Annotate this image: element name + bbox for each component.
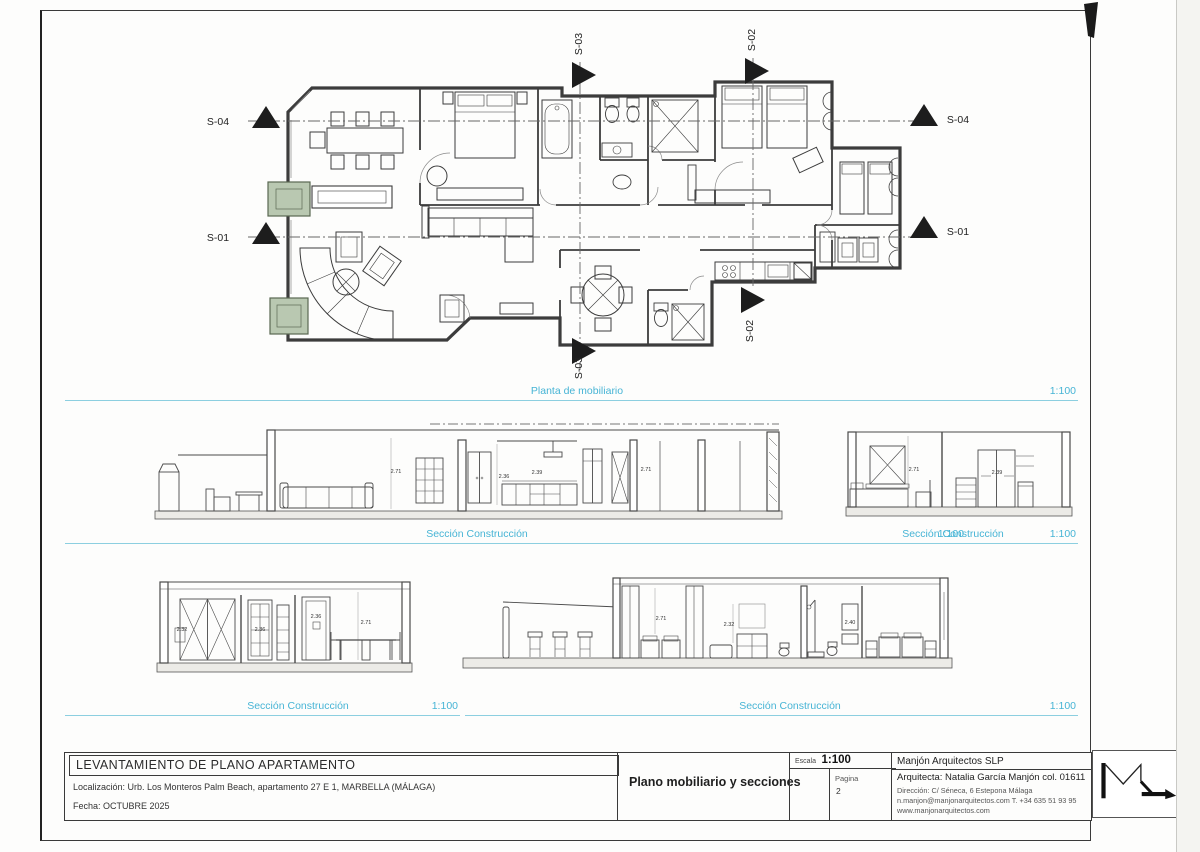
- section-b-window: [866, 446, 909, 488]
- page-number: 2: [836, 786, 841, 796]
- armchair-1: [336, 232, 362, 262]
- media-console: [312, 186, 392, 208]
- scale-value: 1:100: [822, 754, 851, 766]
- section-a-title: Sección Construcción: [357, 527, 597, 542]
- dim-d-240: 2.40: [845, 620, 856, 626]
- master-bed: [427, 92, 527, 200]
- dim-c-232: 2.32: [177, 627, 188, 633]
- section-b-bed: [850, 483, 908, 507]
- section-d-title: Sección Construcción: [670, 699, 910, 714]
- architect-name: Arquitecta: Natalia García Manjón col. 0…: [897, 772, 1085, 783]
- section-d-wardrobes: [622, 586, 703, 658]
- plan-title-row: Planta de mobiliario 1:100: [65, 383, 1078, 401]
- plan-scale: 1:100: [1050, 384, 1076, 399]
- section-a-right-wall: [767, 432, 779, 511]
- section-c-title: Sección Construcción: [178, 699, 418, 714]
- firm-contact: n.manjon@manjonarquitectos.com T. +34 63…: [897, 796, 1076, 805]
- section-c-scale: 1:100: [432, 699, 458, 714]
- utility-room: [820, 232, 878, 262]
- section-a-double-door: [468, 452, 491, 503]
- section-b-drawing: 2.71 2.39: [846, 432, 1072, 516]
- title-block: LEVANTAMIENTO DE PLANO APARTAMENTO Local…: [64, 752, 1092, 821]
- section-d-drawing: 2.71 2.32 2.40: [463, 578, 952, 668]
- divider: [891, 769, 1091, 770]
- location-value: Urb. Los Monteros Palm Beach, apartament…: [128, 782, 436, 792]
- marker-s03-bottom: S-03: [573, 357, 585, 379]
- marker-s01-left: S-01: [207, 232, 229, 244]
- guest-bath: [654, 303, 704, 340]
- firm-name: Manjón Arquitectos SLP: [897, 756, 1004, 767]
- dim-a-271: 2.71: [391, 469, 402, 475]
- armchair-2: [363, 246, 402, 285]
- drawing-title: Plano mobiliario y secciones: [629, 775, 801, 789]
- divider: [617, 753, 618, 820]
- section-d-terrace: [503, 602, 618, 658]
- wing-bedroom: [840, 158, 898, 268]
- section-a-drawing: 2.71 2.36 2.39: [155, 424, 782, 519]
- section-c-drawing: 2.32 2.36 2.36 2.71: [157, 582, 412, 672]
- date-label: Fecha:: [73, 801, 101, 811]
- firm-logo-box: [1092, 750, 1178, 818]
- kitchen-counter: [715, 262, 812, 280]
- section-d-twin-beds: [641, 636, 680, 658]
- section-d-shower: [807, 600, 858, 657]
- page-label: Pagina: [835, 774, 858, 783]
- section-b-door: [978, 450, 1015, 507]
- section-a-xdoor: [612, 452, 628, 503]
- section-a-glazed-grid: [416, 458, 443, 503]
- dim-d-232: 2.32: [724, 622, 735, 628]
- marker-s04-right: S-04: [947, 114, 969, 126]
- firm-logo-icon: [1093, 751, 1177, 817]
- section-b-title-row: Sección Construcción 1:100: [878, 526, 1078, 544]
- date-line: Fecha: OCTUBRE 2025: [73, 801, 170, 811]
- drawing-sheet: S-04 S-01 S-04 S-01 S-03 S-02 S-03 S-02: [0, 0, 1200, 852]
- scan-corner-artifact: [1084, 2, 1098, 38]
- marker-s03-top: S-03: [573, 33, 585, 55]
- location-label: Localización:: [73, 782, 125, 792]
- wc-bidet: [602, 98, 639, 157]
- dim-a-236: 2.36: [499, 474, 510, 480]
- section-b-chair: [916, 480, 931, 507]
- shower-top: [613, 100, 698, 200]
- scale-label: Escala: [795, 758, 816, 765]
- hall-console: [695, 190, 770, 203]
- door-arcs: [420, 146, 832, 318]
- section-a-sofa: [280, 483, 373, 508]
- dim-a-239: 2.39: [532, 470, 543, 476]
- marker-s01-right: S-01: [947, 226, 969, 238]
- dim-c-236b: 2.36: [311, 614, 322, 620]
- dim-c-236a: 2.36: [255, 627, 266, 633]
- dim-b-271: 2.71: [909, 467, 920, 473]
- divider: [891, 753, 892, 820]
- twin-bedroom: [722, 86, 832, 173]
- location-line: Localización: Urb. Los Monteros Palm Bea…: [73, 782, 435, 792]
- column-left-bottom: [270, 298, 308, 334]
- scale-box: Escala 1:100: [789, 753, 896, 769]
- living-sofa: [422, 206, 533, 262]
- dim-a-271b: 2.71: [641, 467, 652, 473]
- dim-d-271: 2.71: [656, 616, 667, 622]
- section-d-scale: 1:100: [1050, 699, 1076, 714]
- section-b-sink: [1016, 456, 1034, 507]
- section-c-title-row: Sección Construcción 1:100: [65, 698, 460, 716]
- firm-website: www.manjonarquitectos.com: [897, 806, 990, 815]
- plan-title: Planta de mobiliario: [457, 384, 697, 399]
- section-a-cabinet: [583, 449, 602, 503]
- section-b-shelf: [956, 478, 976, 507]
- section-d-bath: [710, 604, 789, 658]
- section-a-terrace: [159, 455, 268, 511]
- section-b-title: Sección Construcción: [878, 527, 1028, 542]
- marker-s02-top: S-02: [746, 29, 758, 51]
- section-c-door-opening: [302, 597, 330, 660]
- firm-address: Dirección: C/ Séneca, 6 Estepona Málaga: [897, 786, 1032, 795]
- project-title: LEVANTAMIENTO DE PLANO APARTAMENTO: [69, 755, 619, 776]
- divider: [789, 768, 790, 820]
- section-d-title-row: Sección Construcción 1:100: [465, 698, 1078, 716]
- date-value: OCTUBRE 2025: [103, 801, 170, 811]
- section-a-title-row: Sección Construcción 1:100: [65, 526, 966, 544]
- section-b-scale: 1:100: [1050, 527, 1076, 542]
- dim-b-239: 2.39: [992, 470, 1003, 476]
- bathtub: [542, 100, 572, 158]
- divider: [829, 768, 830, 820]
- section-c-ladder-shelf: [277, 605, 289, 660]
- section-d-bedroom: [866, 633, 936, 657]
- scan-margin: [1177, 0, 1200, 852]
- interior-walls: [420, 88, 900, 345]
- marker-s04-left: S-04: [207, 116, 229, 128]
- marker-s02-bottom: S-02: [744, 320, 756, 342]
- drawings-svg: S-04 S-01 S-04 S-01 S-03 S-02 S-03 S-02: [0, 0, 1200, 852]
- column-left-top: [268, 182, 310, 216]
- section-cut-lines: [248, 58, 930, 370]
- dim-c-271: 2.71: [361, 620, 372, 626]
- section-c-table: [331, 632, 400, 660]
